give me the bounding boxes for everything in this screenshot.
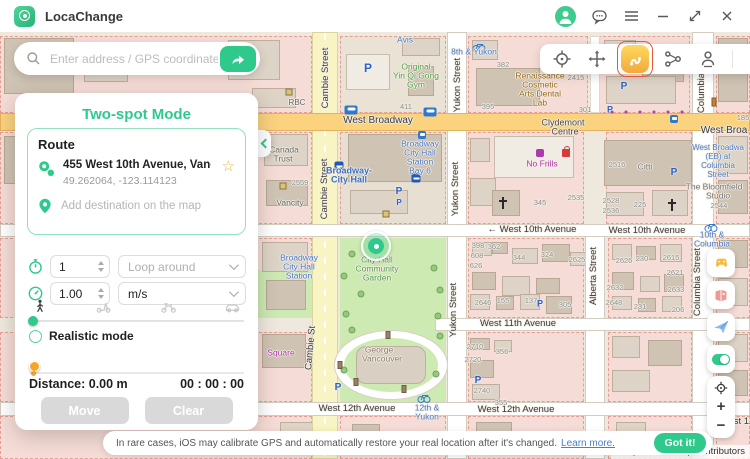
parking-icon: P — [475, 376, 482, 386]
map-label: 356 — [496, 348, 509, 356]
map-building — [640, 276, 660, 292]
map-label: Gym — [407, 81, 425, 90]
map-label: 231 — [634, 303, 647, 311]
map-label: 324 — [541, 251, 554, 259]
car-icon[interactable] — [225, 299, 240, 313]
map-label: Garden — [363, 274, 391, 283]
two-spot-panel: Two-spot Mode Route 455 West 10th Avenue… — [15, 93, 258, 430]
loop-count-input[interactable] — [59, 260, 87, 274]
search-icon — [26, 51, 41, 66]
route-start-texts: 455 West 10th Avenue, Vanco... 49.262064… — [63, 159, 211, 187]
map-label: Vancouver — [362, 355, 402, 364]
map-label: 2720 — [465, 356, 482, 364]
map-label: 230 — [636, 255, 649, 263]
route-heading: Route — [38, 137, 235, 152]
device-button[interactable] — [746, 48, 750, 70]
titlebar: LocaChange — [0, 0, 750, 32]
tree-icon — [433, 371, 440, 378]
route-coordinates: 49.262064, -123.114123 — [63, 175, 211, 187]
mode-toolbar — [540, 44, 750, 74]
map-label: Avis — [397, 36, 413, 45]
speed-slider[interactable] — [29, 316, 244, 326]
app-window: LocaChange — [0, 0, 750, 459]
got-it-button[interactable]: Got it! — [654, 433, 706, 453]
bus-icon — [670, 115, 678, 123]
zoom-out-button[interactable]: − — [717, 418, 726, 433]
folded-map-icon — [712, 286, 730, 304]
add-destination-label: Add destination on the map — [61, 200, 201, 212]
tree-icon — [349, 251, 356, 258]
learn-more-link[interactable]: Learn more. — [561, 438, 615, 449]
map-building — [612, 336, 640, 358]
map-label: 2646 — [475, 299, 492, 307]
map-building — [494, 136, 574, 178]
route-address: 455 West 10th Avenue, Vanco... — [63, 159, 211, 171]
map-label: Studio — [706, 192, 730, 201]
map-building — [536, 278, 560, 294]
map-label: West Broadway — [343, 116, 413, 127]
map-label: 2633 — [668, 286, 685, 294]
map-label: ← West 10th Avenue — [488, 225, 577, 235]
two-spot-mode-button[interactable] — [621, 45, 649, 73]
search-bar — [14, 42, 260, 75]
realistic-mode-option[interactable]: Realistic mode — [29, 329, 134, 343]
multi-spot-mode-button[interactable] — [662, 48, 684, 70]
search-submit-button[interactable] — [220, 46, 256, 72]
map-label: Bay 6 — [409, 167, 431, 176]
map-label: 344 — [513, 254, 526, 262]
multi-spot-icon — [663, 49, 683, 69]
map-label: City Hall — [331, 175, 367, 184]
map-label: 155 — [497, 297, 510, 305]
map-label: 382 — [497, 61, 510, 69]
bank-icon — [280, 183, 287, 190]
destination-pin-icon — [38, 198, 52, 214]
map-label: 2536 — [603, 207, 620, 215]
map-label: 355 — [495, 399, 508, 407]
vehicle-speed-presets — [27, 299, 246, 313]
map-building — [470, 138, 490, 162]
send-arrow-icon — [230, 52, 246, 66]
monument-icon — [386, 331, 391, 339]
toolbar-divider — [732, 50, 733, 68]
map-label: 2710 — [467, 343, 484, 351]
user-avatar[interactable] — [555, 6, 576, 27]
scooter-icon[interactable] — [96, 299, 111, 313]
feedback-icon[interactable] — [590, 7, 608, 25]
tree-icon — [349, 327, 356, 334]
maximize-button[interactable] — [686, 7, 704, 25]
map-label: 2621 — [667, 269, 684, 277]
route-card: Route 455 West 10th Avenue, Vanco... 49.… — [27, 128, 246, 235]
parking-icon: P — [396, 187, 403, 197]
dot-icon — [611, 111, 614, 114]
move-button[interactable]: Move — [41, 397, 129, 424]
map-zoom-controls: + − — [707, 376, 735, 438]
map-label: Columbia — [694, 240, 730, 249]
bank-icon — [286, 89, 293, 96]
car-icon — [345, 106, 358, 115]
app-title: LocaChange — [45, 9, 123, 24]
map-label: Centre — [551, 127, 578, 136]
monument-icon — [338, 361, 343, 369]
map-label: West 11th Avenue — [480, 319, 556, 329]
map-label: 2740 — [474, 387, 491, 395]
map-building — [612, 370, 650, 392]
map-label: Citti — [638, 163, 653, 172]
stats-row: Distance: 0.00 m 00 : 00 : 00 — [29, 377, 244, 391]
map-label: 2415 — [568, 74, 585, 82]
map-label: 185 — [737, 114, 750, 122]
teleport-mode-button[interactable] — [551, 48, 573, 70]
map-label: 2516 — [609, 161, 626, 169]
map-label: 626 — [470, 262, 483, 270]
slider-thumb[interactable] — [28, 316, 38, 326]
map-label: 2625 — [569, 256, 586, 264]
tree-icon — [437, 287, 444, 294]
person-icon — [555, 6, 576, 27]
monument-icon — [354, 378, 359, 386]
dot-icon — [667, 111, 670, 114]
motorcycle-icon[interactable] — [161, 299, 176, 313]
notice-text: In rare cases, iOS may calibrate GPS and… — [116, 438, 557, 449]
toggle-button[interactable] — [707, 345, 735, 373]
map-label: 8th & Yukon — [451, 48, 497, 57]
map-label: Yukon — [415, 413, 439, 422]
move-arrows-icon — [587, 49, 607, 69]
bag-icon — [562, 149, 570, 157]
map-label: West 12th Avenue — [478, 405, 555, 415]
map-label: Alberta Street — [589, 247, 599, 305]
cart-icon — [536, 149, 544, 157]
map-label: 398 — [472, 242, 485, 250]
parking-icon: P — [537, 300, 543, 309]
bank-icon — [383, 211, 390, 218]
distance-value: Distance: 0.00 m — [29, 377, 128, 391]
map-label: Street — [707, 171, 728, 179]
tree-icon — [435, 313, 442, 320]
map-building — [648, 340, 682, 366]
map-label: Vancity — [276, 199, 303, 208]
map-label: 608 — [471, 252, 484, 260]
map-label: Square — [267, 349, 294, 358]
gps-notice-bar: In rare cases, iOS may calibrate GPS and… — [103, 431, 712, 455]
map-label: West 10th Avenue — [609, 226, 686, 236]
map-label: 137 — [525, 297, 538, 305]
teleport-jump-button[interactable] — [707, 313, 735, 341]
route-start-icon — [38, 160, 55, 177]
map-label: 395 — [482, 103, 495, 111]
dot-icon — [681, 111, 684, 114]
dot-icon — [625, 111, 628, 114]
tower-icon — [712, 98, 717, 107]
tree-icon — [431, 265, 438, 272]
toggle-on-icon — [712, 354, 730, 365]
map-building — [472, 272, 496, 290]
search-input[interactable] — [48, 51, 220, 67]
locate-icon — [714, 381, 728, 395]
map-label: Cambie Street — [321, 48, 331, 109]
walk-icon[interactable] — [33, 299, 47, 313]
timer-icon — [27, 258, 44, 275]
map-label: 2632 — [607, 284, 624, 292]
map-label: Columbia Street — [693, 248, 703, 316]
gamepad-icon — [712, 254, 731, 272]
paper-plane-icon — [712, 318, 730, 336]
monument-icon — [402, 385, 407, 393]
parking-icon: P — [364, 62, 372, 74]
map-label: 2648 — [606, 299, 623, 307]
dot-icon — [639, 111, 642, 114]
app-logo-icon — [14, 6, 35, 27]
locate-button[interactable] — [714, 381, 728, 395]
titlebar-controls — [555, 6, 736, 27]
map-label: 2626 — [616, 257, 633, 265]
tree-icon — [358, 291, 365, 298]
chevron-down-icon — [229, 287, 239, 297]
loop-mode-value: Loop around — [128, 260, 195, 274]
map-label: No Frills — [526, 160, 557, 169]
marker-icon — [361, 231, 391, 261]
panel-title: Two-spot Mode — [15, 93, 258, 123]
stepper-arrows-icon[interactable] — [98, 261, 104, 272]
route-destination-row[interactable]: Add destination on the map — [38, 198, 235, 214]
map-building — [266, 280, 306, 310]
map-label: Yukon Street — [449, 283, 459, 337]
map-building — [502, 276, 530, 296]
route-start-row: 455 West 10th Avenue, Vanco... 49.262064… — [38, 159, 235, 187]
dot-icon — [653, 111, 656, 114]
zoom-in-button[interactable]: + — [717, 399, 726, 414]
chevron-down-icon — [229, 260, 239, 270]
map-label: 362 — [488, 243, 501, 251]
map-label: West Broa — [701, 126, 748, 137]
gamepad-button[interactable] — [707, 249, 735, 277]
slider-track — [29, 320, 244, 322]
map-label: 2528 — [603, 197, 620, 205]
car-icon — [424, 108, 437, 117]
map-label: 225 — [634, 201, 647, 209]
chevron-left-icon — [261, 139, 271, 149]
map-label: 301 — [579, 106, 592, 114]
map-label: 411 — [400, 103, 412, 111]
map-label: Lab — [533, 99, 547, 108]
parking-icon: P — [335, 383, 342, 393]
tree-icon — [437, 333, 444, 340]
map-label: 2544 — [711, 202, 728, 210]
progress-track — [29, 372, 244, 374]
loop-mode-dropdown[interactable]: Loop around — [118, 255, 246, 278]
loop-row: Loop around — [27, 255, 246, 278]
crosshair-icon — [552, 49, 572, 69]
minimize-button[interactable] — [654, 7, 672, 25]
map-label: Trust — [273, 155, 292, 164]
radio-icon[interactable] — [29, 330, 42, 343]
cross-icon — [667, 199, 677, 211]
map-label: West 12th Avenue — [319, 404, 396, 414]
map-label: 2559 — [292, 179, 309, 187]
panel-collapse-button[interactable] — [258, 130, 271, 157]
realistic-mode-label: Realistic mode — [49, 329, 134, 343]
joystick-mode-button[interactable] — [586, 48, 608, 70]
map-label: Yukon Street — [451, 162, 461, 216]
tree-icon — [341, 273, 348, 280]
clear-button[interactable]: Clear — [145, 397, 233, 424]
social-spot-mode-button[interactable] — [697, 48, 719, 70]
map-label: RBC — [289, 99, 306, 107]
favorite-star-icon[interactable]: ☆ — [222, 159, 235, 174]
map-label: 305 — [559, 301, 572, 309]
map-building — [606, 76, 676, 104]
map-label: Yukon Street — [453, 58, 463, 112]
map-label: 345 — [534, 199, 547, 207]
map-routes-button[interactable] — [707, 281, 735, 309]
progress-pin-icon — [29, 361, 40, 372]
route-progress-bar — [29, 361, 244, 377]
person-pin-icon — [698, 49, 718, 69]
parking-icon: P — [621, 82, 628, 92]
map-label: 2615 — [663, 254, 680, 262]
menu-icon[interactable] — [622, 7, 640, 25]
loop-count-stepper — [50, 255, 110, 278]
parking-icon: P — [396, 199, 401, 207]
app-identity: LocaChange — [14, 6, 123, 27]
map-label: 2535 — [568, 194, 585, 202]
two-spot-route-icon — [626, 50, 645, 69]
map-label: Station — [286, 272, 312, 281]
cross-icon — [498, 197, 508, 209]
close-button[interactable] — [718, 7, 736, 25]
stepper-arrows-icon[interactable] — [98, 288, 104, 299]
parking-icon: P — [671, 168, 678, 178]
map-label: 206 — [672, 306, 685, 314]
tree-icon — [343, 311, 350, 318]
timer-value: 00 : 00 : 00 — [180, 377, 244, 391]
action-buttons: Move Clear — [15, 397, 258, 424]
